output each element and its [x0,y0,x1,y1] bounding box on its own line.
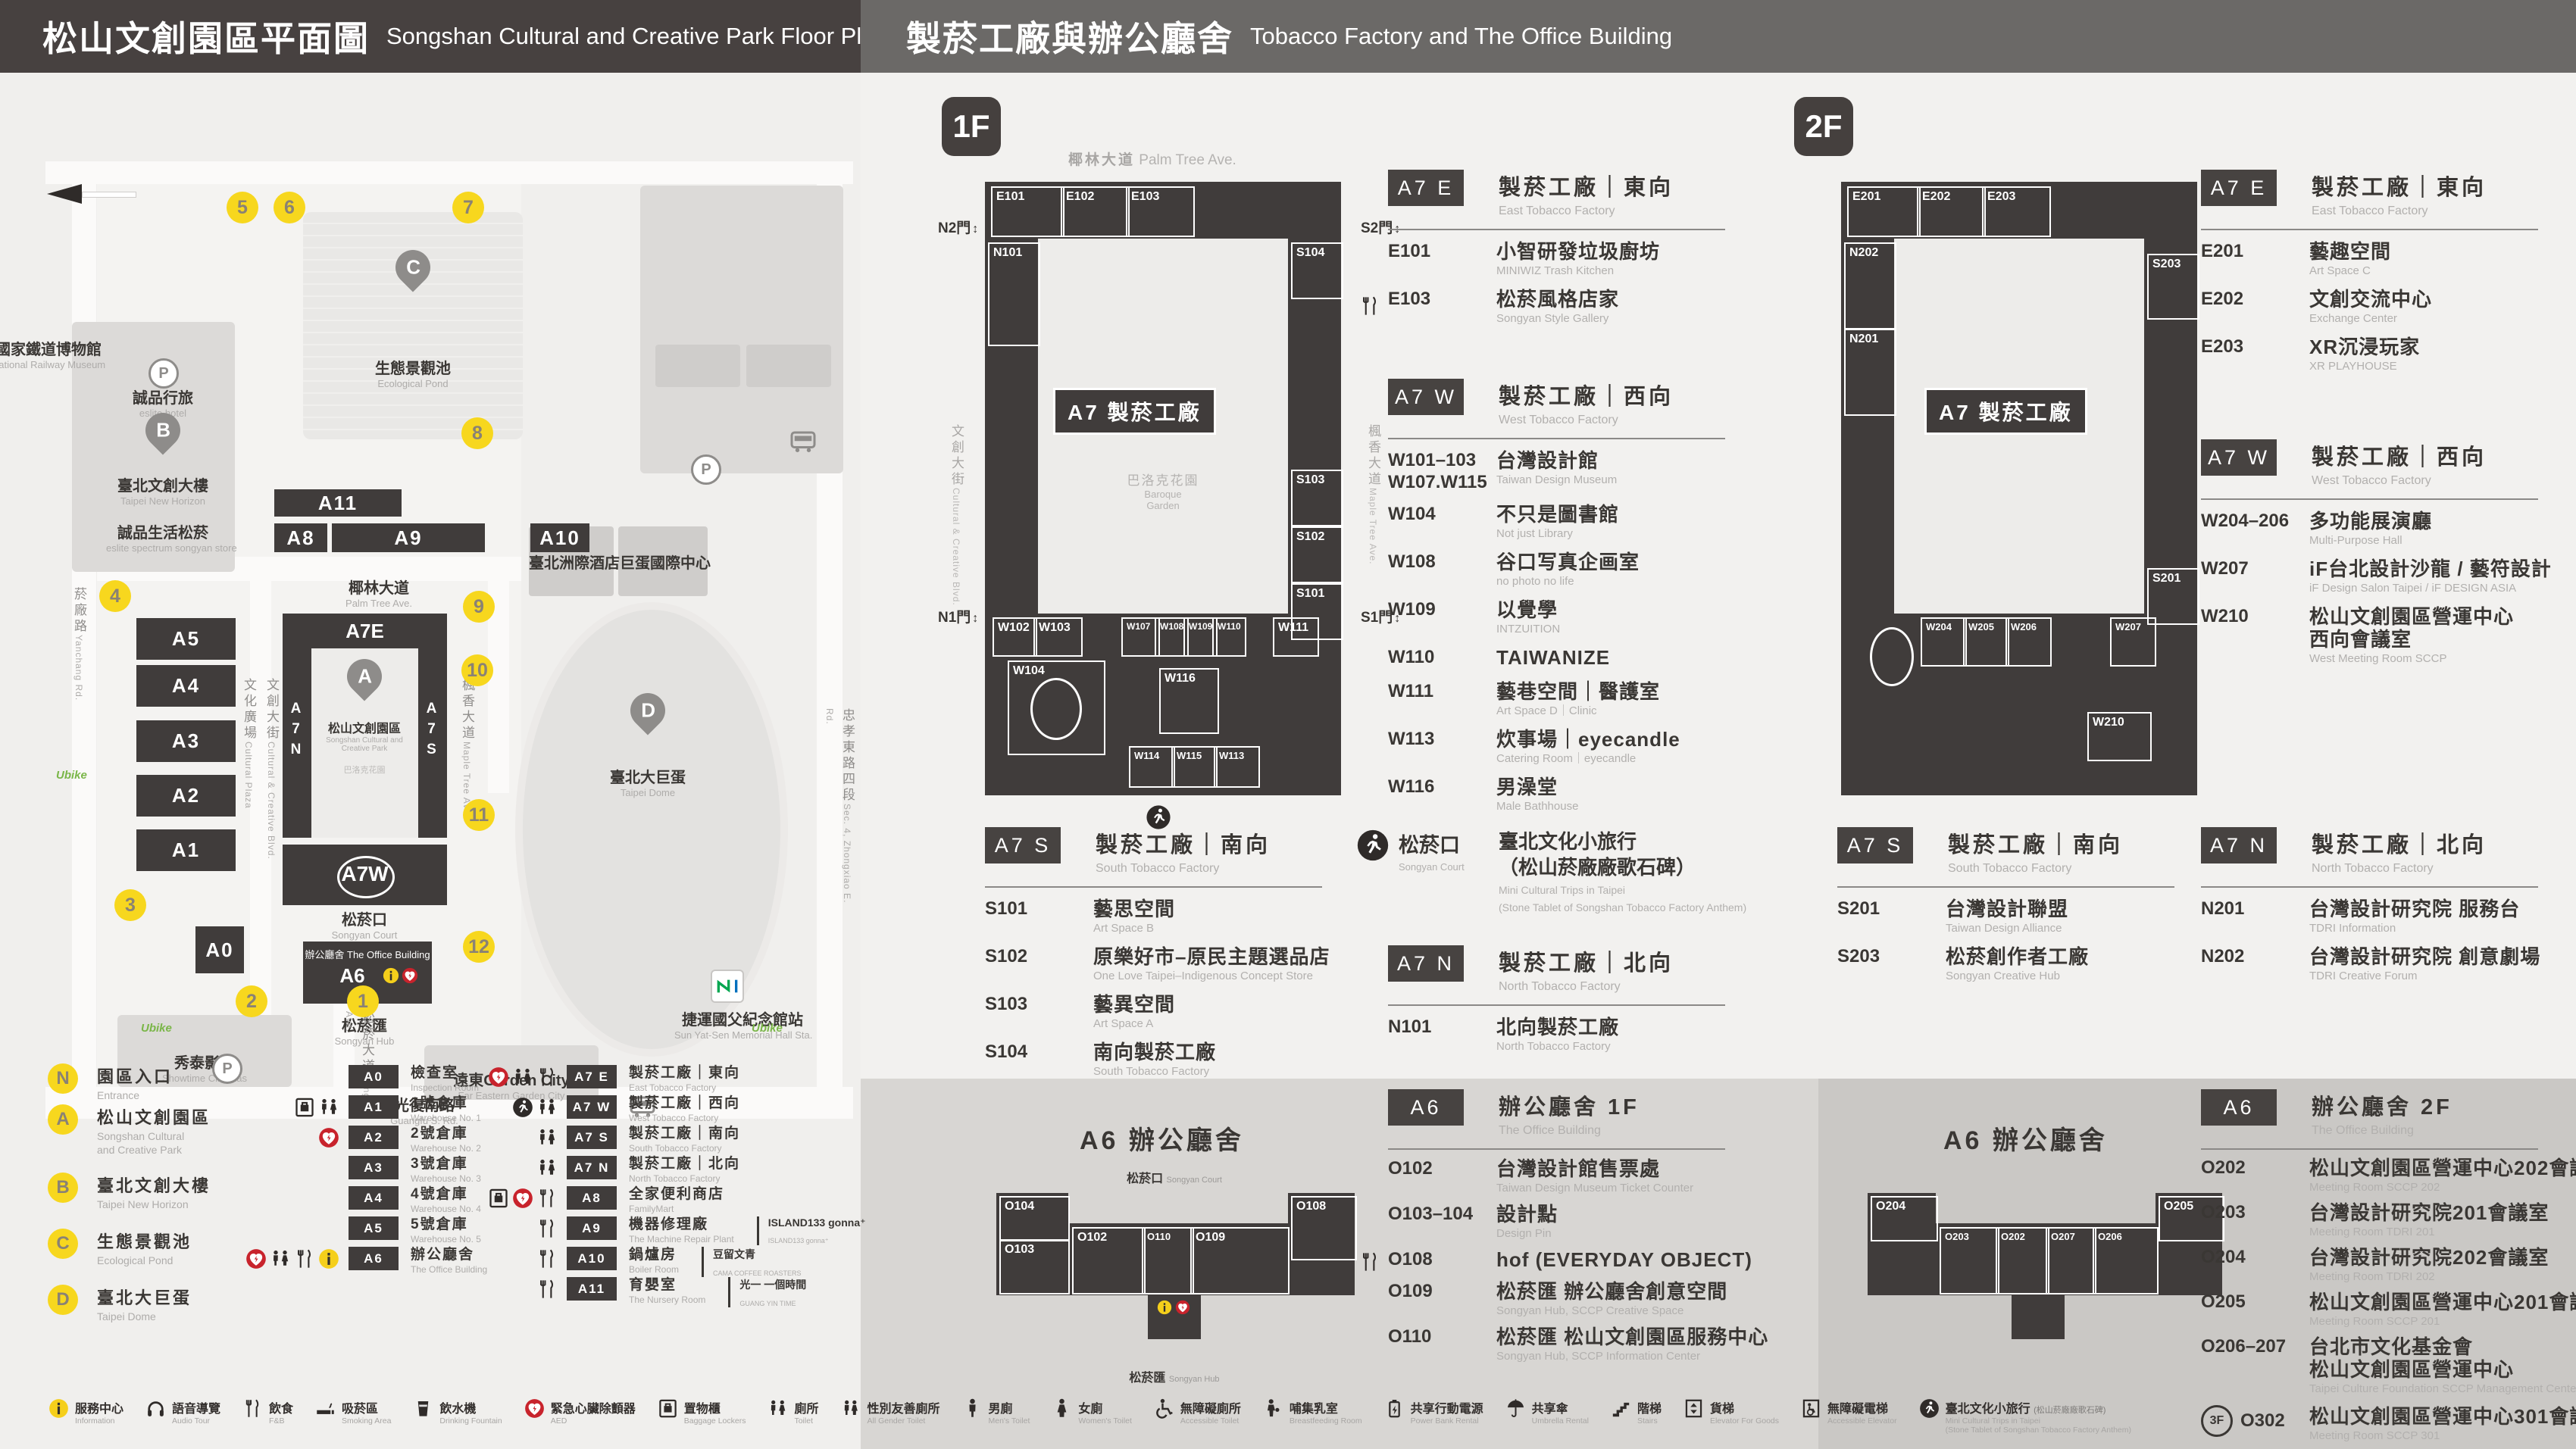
room[interactable]: E103 [1126,186,1195,237]
legend-building-badge: A7 W [567,1095,617,1119]
room[interactable]: W207 [2110,617,2156,667]
legend-brand: 光一 一個時間GUANG YIN TIME [728,1277,806,1307]
entrance-number[interactable]: 8 [461,417,493,449]
amenity-legend-item: 吸菸區 Smoking Area [315,1398,391,1426]
map-building[interactable]: A10 [530,523,589,552]
room-list-item[interactable]: S104 南向製菸工廠South Tobacco Factory [985,1041,1409,1079]
legend-point-row: D 臺北大巨蛋Taipei Dome [45,1285,333,1324]
amenity-icon [270,1248,291,1269]
room-list-item[interactable]: W116 男澡堂Male Bathhouse [1388,776,1812,814]
floor-2f-tag[interactable]: 2F [1794,97,1853,156]
room-list-item[interactable]: O103–104 設計點Design Pin [1388,1203,1812,1241]
legend-building-badge: A11 [567,1277,617,1301]
amenity-icon [767,1398,788,1419]
legend-point-row: A 松山文創園區Songshan Culturaland Creative Pa… [45,1104,333,1156]
plan-2f[interactable]: A7 製菸工廠 E201E202E203N202N201S203S201W204… [1841,182,2197,795]
room[interactable]: W114 [1129,746,1175,788]
section-a6-1f: A6 辦公廳舍 1FThe Office Building O102 台灣設計館… [1388,1089,1812,1363]
room-list-item[interactable]: O102 台灣設計館售票處Taiwan Design Museum Ticket… [1388,1157,1812,1195]
entrance-number[interactable]: 11 [463,799,495,831]
room[interactable]: N201 [1844,329,1896,416]
metro-logo [711,970,744,1003]
a6-2f-plan-title: A6 辦公廳舍 [1943,1120,2108,1157]
amenity-legend-item: 飲食 F&B [242,1398,293,1426]
legend-brand: 豆留文青CAMA COFFEE ROASTERS [702,1247,802,1277]
amenity-icon [318,1248,339,1269]
gate-label: N1門↕ [938,606,978,626]
legend-building-badge: A6 [349,1247,399,1270]
city-block-ne-a [655,345,740,387]
room[interactable]: O202 [1996,1227,2049,1294]
a6-plan-1f[interactable]: O104O103O102O110O109O108 [989,1166,1360,1363]
legend-building-badge: A4 [349,1186,399,1210]
room-list-item[interactable]: O203 台灣設計研究院201會議室Meeting Room TDRI 201 [2201,1201,2576,1239]
room-list-item[interactable]: W110 TAIWANIZE [1388,646,1812,670]
left-header-title-zh: 松山文創園區平面圖 [42,11,370,61]
room-list-item[interactable]: O205 松山文創園區營運中心201會議室Meeting Room SCCP 2… [2201,1291,2576,1329]
map-office-label: 辦公廳舍 The Office Building [303,947,432,961]
room[interactable]: W205 [1963,617,2009,667]
room-list-item[interactable]: W113 炊事場｜eyecandleCatering Room｜eyecandl… [1388,728,1812,766]
ubike-logo: Ubike [141,1022,172,1035]
right-header-title-zh: 製菸工廠與辦公廳舍 [906,11,1233,61]
map-a7e-label: A7E [283,620,447,643]
amenity-icon [1611,1398,1631,1419]
map-building[interactable]: A1 [136,829,236,871]
amenity-legend-item: 臺北文化小旅行 (松山菸廠廠歌石碑) Mini Cultural Trips i… [1919,1398,2131,1435]
city-block-ne-b [746,345,831,387]
amenity-icon [524,1398,545,1419]
room-list-item[interactable]: O204 台灣設計研究院202會議室Meeting Room TDRI 202 [2201,1246,2576,1284]
legend-point-row: N 園區入口Entrance [45,1063,333,1103]
ecological-pond [303,212,523,439]
room-list-item[interactable]: O108 hof (EVERYDAY OBJECT) [1388,1248,1812,1273]
legend-brand: ISLAND133 gonna⁺ISLAND133 gonna⁺ [757,1216,866,1245]
room[interactable]: O203 [1940,1227,1999,1294]
room[interactable]: O206 [2093,1227,2159,1294]
a6-1f-hub-label: 松菸匯 Songyan Hub [1114,1367,1235,1385]
amenity-icon [48,1398,69,1419]
map-building[interactable]: A0 [195,926,244,973]
amenity-icon [1263,1398,1283,1419]
amenity-legend-item: 哺集乳室 Breastfeeding Room [1263,1398,1362,1426]
legend-point-symbol: C [48,1229,78,1259]
legend-point-symbol: A [48,1104,78,1135]
section-a7s-1f: A7 S 製菸工廠｜南向South Tobacco Factory S101 藝… [985,827,1409,1079]
amenity-icon [294,1248,315,1269]
legend-building-badge: A3 [349,1156,399,1179]
map-label: 誠品生活松菸eslite spectrum songyan store [106,520,220,554]
entrance-number[interactable]: 2 [236,985,267,1017]
amenity-icon [658,1398,678,1419]
amenity-icon [536,1279,558,1300]
amenity-icon [1154,1398,1174,1419]
amenity-legend-item: 階梯 Stairs [1611,1398,1662,1426]
map-building[interactable]: A3 [136,720,236,762]
amenity-icon [512,1188,533,1209]
amenity-legend-strip: 服務中心 Information 語音導覽 Audio Tour 飲食 F&B [48,1398,2541,1435]
legend-building-row: A3 3號倉庫Warehouse No. 3 [349,1156,481,1184]
right-header-title-en: Tobacco Factory and The Office Building [1250,23,1672,50]
room-list-item[interactable]: S201 台灣設計聯盟Taiwan Design Alliance [1837,898,2262,935]
gate-arrow-icon: ↕ [972,223,978,236]
amenity-icon [1359,295,1380,317]
room[interactable]: W210 [2087,712,2152,761]
entrance-number[interactable]: 6 [274,192,305,223]
room[interactable]: O109 [1190,1227,1290,1294]
amenity-legend-item: 貨梯 Elevator For Goods [1683,1398,1779,1426]
room-list-item[interactable]: W104 不只是圖書館Not just Library [1388,503,1812,541]
amenity-icon [536,1066,558,1088]
room-list-item[interactable]: O110 松菸匯 松山文創園區服務中心Songyan Hub, SCCP Inf… [1388,1326,1812,1363]
amenity-icon [318,1097,339,1118]
section-a7n-1f: A7 N 製菸工廠｜北向North Tobacco Factory N101 北… [1388,945,1812,1054]
map-building[interactable]: A5 [136,618,236,660]
map-label: 椰林大道Palm Tree Ave. [303,576,455,609]
room-list-item[interactable]: E203 XR沉浸玩家XR PLAYHOUSE [2201,336,2576,373]
section-a7n-2f: A7 N 製菸工廠｜北向North Tobacco Factory N201 台… [2201,827,2576,983]
plan-2f-title: A7 製菸工廠 [1924,388,2087,435]
room-list-item[interactable]: S102 原樂好市–原民主題選品店One Love Taipei–Indigen… [985,945,1409,983]
room-list-item[interactable]: E201 藝趣空間Art Space C [2201,240,2576,278]
plan-1f-title: A7 製菸工廠 [1053,388,1216,435]
room[interactable]: E101 [991,186,1064,237]
room[interactable]: W110 [1212,617,1246,657]
civic-blvd-road [45,161,853,184]
street-label: 菸廠路Yanchang Rd. [70,587,89,716]
section-a7e-2f: A7 E 製菸工廠｜東向East Tobacco Factory E201 藝趣… [2201,170,2576,373]
left-header-title-en: Songshan Cultural and Creative Park Floo… [386,23,888,50]
room[interactable]: O103 [999,1239,1070,1294]
entrance-number[interactable]: 1 [347,985,379,1017]
amenity-icon [1683,1398,1704,1419]
park-map[interactable]: A7E A7N A7S 松山文創園區 Songshan Cultural and… [0,72,861,1057]
amenity-icon [536,1097,558,1118]
amenity-icon [1801,1398,1821,1419]
amenity-legend-item: 性別友善廁所 All Gender Toilet [840,1398,939,1426]
legend-building-badge: A2 [349,1126,399,1149]
songyan-court-block: 松菸口Songyan Court 臺北文化小旅行 （松山菸廠廠歌石碑） Mini… [1356,829,1811,915]
map-building[interactable]: A4 [136,665,236,707]
amenity-legend-item: 無障礙電梯 Accessible Elevator [1801,1398,1897,1426]
room[interactable]: W204 [1921,617,1967,667]
map-building[interactable]: A11 [274,489,402,517]
amenity-icon [145,1398,166,1419]
legend-building-row: A6 辦公廳舍The Office Building [349,1247,487,1275]
amenity-icon [962,1398,983,1419]
amenity-icon [1359,1251,1380,1273]
room-list-item[interactable]: W109 以覺學INTZUITION [1388,598,1812,636]
room-list-item[interactable]: E101 小智研發垃圾廚坊MINIWIZ Trash Kitchen [1388,240,1812,278]
room[interactable]: W111 [1273,617,1319,657]
map-a6-aed-icon [402,967,418,984]
entrance-number[interactable]: 4 [99,580,131,612]
room[interactable]: O104 [999,1196,1070,1241]
legend-building-row: A7 E 製菸工廠｜東向East Tobacco Factory [567,1065,740,1093]
amenity-icon [536,1127,558,1148]
legend-building-badge: A1 [349,1095,399,1119]
maple-ave-label-1f: 楓香大道Maple Tree Ave. [1364,424,1383,565]
room[interactable]: O110 [1142,1227,1194,1294]
amenity-icon [315,1398,336,1419]
map-label: 臺北文創大樓Taipei New Horizon [98,473,227,507]
baroque-garden-label: 巴洛克花園 Baroque Garden [1099,470,1227,511]
legend-building-badge: A9 [567,1216,617,1240]
entrance-number[interactable]: 9 [463,591,495,623]
room-list-item[interactable]: O109 松菸匯 辦公廳舍創意空間Songyan Hub, SCCP Creat… [1388,1280,1812,1318]
amenity-icon [536,1157,558,1179]
amenity-icon [840,1398,861,1419]
map-label: 松菸口Songyan Court [311,907,417,941]
legend-building-row: A5 5號倉庫Warehouse No. 5 [349,1216,481,1244]
amenity-icon [318,1127,339,1148]
amenity-icon [536,1248,558,1269]
legend-building-badge: A10 [567,1247,617,1270]
left-header: 松山文創園區平面圖 Songshan Cultural and Creative… [0,0,903,73]
room[interactable]: W116 [1159,668,1219,734]
amenity-icon [294,1097,315,1118]
room-list-item[interactable]: N202 台灣設計研究院 創意劇場TDRI Creative Forum [2201,945,2576,983]
legend-point-symbol: N [48,1063,78,1094]
amenity-legend-item: 置物櫃 Baggage Lockers [658,1398,746,1426]
section-a7w-2f: A7 W 製菸工廠｜西向West Tobacco Factory W204–20… [2201,439,2576,666]
gate-arrow-icon: ↕ [972,612,978,625]
room-list-item[interactable]: W108 谷口写真企画室no photo no life [1388,551,1812,589]
legend-point-symbol: B [48,1173,78,1203]
legend-building-badge: A5 [349,1216,399,1240]
legend-building-badge: A7 S [567,1126,617,1149]
a6-1f-plan-title: A6 辦公廳舍 [1080,1120,1244,1157]
map-label: 國家鐵道博物館National Railway Museum [0,337,117,370]
amenity-legend-item: 女廁 Women's Toilet [1052,1398,1131,1426]
floor-1f-tag[interactable]: 1F [942,97,1001,156]
room[interactable]: S102 [1291,526,1343,583]
amenity-icon [413,1398,433,1419]
amenity-icon [512,1097,533,1118]
entrance-number[interactable]: 7 [452,192,484,223]
street-label: 忠孝東路四段Sec. 4, Zhongxiao E. Rd. [823,708,857,905]
room-list-item[interactable]: E103 松菸風格店家Songyan Style Gallery [1388,288,1812,326]
amenity-legend-item: 語音導覽 Audio Tour [145,1398,220,1426]
street-label: 文創大街Cultural & Creative Blvd. [262,678,281,890]
amenity-legend-item: 男廁 Men's Toilet [962,1398,1030,1426]
right-header: 製菸工廠與辦公廳舍 Tobacco Factory and The Office… [861,0,2576,73]
legend-building-row: A7 N 製菸工廠｜北向North Tobacco Factory [567,1156,740,1184]
bus-stop-icon [789,428,817,455]
amenity-legend-item: 服務中心 Information [48,1398,123,1426]
section-a7e-1f: A7 E 製菸工廠｜東向East Tobacco Factory E101 小智… [1388,170,1812,326]
north-arrow-icon [47,184,138,204]
legend-building-row: A8 全家便利商店FamilyMart [567,1186,724,1214]
amenity-icon [1384,1398,1405,1419]
amenity-legend-item: 緊急心臟除顫器 AED [524,1398,636,1426]
court-walker-icon-1f [1146,804,1171,830]
legend-point-row: B 臺北文創大樓Taipei New Horizon [45,1173,333,1212]
amenity-icon [1052,1398,1072,1419]
legend-building-row: A2 2號倉庫Warehouse No. 2 [349,1126,481,1154]
room-list-item[interactable]: O206–207 台北市文化基金會松山文創園區營運中心Taipei Cultur… [2201,1335,2576,1396]
room-list-item[interactable]: S203 松菸創作者工廠Songyan Creative Hub [1837,945,2262,983]
room-list-item[interactable]: E202 文創交流中心Exchange Center [2201,288,2576,326]
parking-icon: P [691,454,721,485]
map-label: 臺北大巨蛋Taipei Dome [583,765,712,798]
amenity-icon [1919,1398,1940,1419]
room-list-item[interactable]: S101 藝思空間Art Space B [985,898,1409,935]
room-list-item[interactable]: N201 台灣設計研究院 服務台TDRI Information [2201,898,2576,935]
room[interactable]: W103 [1033,617,1083,657]
room-list-item[interactable]: W101–103W107.W115 台灣設計館Taiwan Design Mus… [1388,449,1812,493]
map-a7w-label: A7W [283,862,447,886]
room[interactable]: W102 [993,617,1037,657]
legend-point-symbol: D [48,1285,78,1315]
a6-plan-2f[interactable]: O204O203O202O207O206O205 [1860,1166,2231,1363]
legend-building-row: A1 1號倉庫Warehouse No. 1 [349,1095,481,1123]
entrance-number[interactable]: 5 [227,192,258,223]
room[interactable]: N101 [988,242,1040,346]
room-list-item[interactable]: W210 松山文創園區營運中心西向會議室West Meeting Room SC… [2201,605,2576,666]
taipei-dome-shape [515,602,788,1057]
amenity-icon [488,1188,509,1209]
map-building[interactable]: A2 [136,775,236,817]
entrance-number[interactable]: 12 [463,931,495,963]
amenity-legend-item: 共享行動電源 Power Bank Rental [1384,1398,1483,1426]
room[interactable]: O108 [1291,1196,1357,1260]
room[interactable]: O204 [1871,1196,1938,1241]
plan-1f[interactable]: A7 製菸工廠 巴洛克花園 Baroque Garden E101E102E10… [985,182,1341,795]
map-label: 巨蛋國際中心 [620,551,708,573]
legend-building-badge: A7 N [567,1156,617,1179]
map-a6-info-icon [383,967,399,984]
room-list-item[interactable]: N101 北向製菸工廠North Tobacco Factory [1388,1016,1812,1054]
room[interactable]: S203 [2147,254,2199,320]
palm-ave-label-1f: 椰林大道 Palm Tree Ave. [1068,148,1236,169]
room[interactable]: W113 [1214,746,1260,788]
map-sccp-label: 松山文創園區 Songshan Cultural and Creative Pa… [300,718,429,776]
amenity-icon [242,1398,263,1419]
legend-building-row: A10 鍋爐房Boiler Room 豆留文青CAMA COFFEE ROAST… [567,1247,802,1277]
legend-building-row: A7 W 製菸工廠｜西向West Tobacco Factory [567,1095,740,1123]
map-building[interactable]: A9 [332,523,485,552]
section-a7w-1f: A7 W 製菸工廠｜西向West Tobacco Factory W101–10… [1388,379,1812,814]
section-a7s-2f: A7 S 製菸工廠｜南向South Tobacco Factory S201 台… [1837,827,2262,983]
map-label: 生態景觀池Ecological Pond [349,356,477,389]
map-label: 捷運國父紀念館站Sun Yat-Sen Memorial Hall Sta. [674,1007,811,1041]
walker-badge-icon [1356,829,1390,862]
parking-icon: P [148,358,179,389]
room[interactable]: O207 [2046,1227,2096,1294]
amenity-legend-item: 無障礙廁所 Accessible Toilet [1154,1398,1241,1426]
room[interactable]: E203 [1982,186,2051,237]
map-building[interactable]: A8 [274,523,327,552]
room[interactable]: S201 [2147,568,2199,625]
room-list-item[interactable]: O202 松山文創園區營運中心202會議室Meeting Room SCCP 2… [2201,1157,2576,1194]
amenity-icon [512,1066,533,1088]
amenity-legend-item: 廁所 Toilet [767,1398,818,1426]
room-list-item[interactable]: W111 藝巷空間｜醫護室Art Space D｜Clinic [1388,680,1812,718]
gate-label: N2門↕ [938,217,978,237]
amenity-icon [488,1066,509,1088]
legend-building-row: A0 檢查室Inspection Room [349,1065,479,1093]
amenity-icon [536,1188,558,1209]
amenity-legend-item: 共享傘 Umbrella Rental [1505,1398,1589,1426]
room-list-item[interactable]: W204–206 多功能展演廳Multi-Purpose Hall [2201,510,2576,548]
room[interactable]: N202 [1844,242,1896,329]
entrance-number[interactable]: 10 [461,654,493,686]
legend-building-row: A9 機器修理廠The Machine Repair Plant ISLAND1… [567,1216,866,1245]
room[interactable]: E202 [1917,186,1986,237]
section-a6-2f: A6 辦公廳舍 2FThe Office Building O202 松山文創園… [2201,1089,2576,1443]
ubike-logo: Ubike [752,1022,783,1035]
legend-building-badge: A8 [567,1186,617,1210]
room[interactable]: E102 [1061,186,1130,237]
amenity-legend-item: 飲水機 Drinking Fountain [413,1398,502,1426]
legend-building-badge: A7 E [567,1065,617,1088]
amenity-icon [245,1248,267,1269]
room-list-item[interactable]: W207 iF台北設計沙龍 / 藝符設計iF Design Salon Taip… [2201,557,2576,595]
legend-building-row: A7 S 製菸工廠｜南向South Tobacco Factory [567,1126,740,1154]
room[interactable]: O102 [1072,1227,1146,1294]
entrance-number[interactable]: 3 [114,889,146,921]
room[interactable]: S103 [1291,470,1343,526]
ubike-logo: Ubike [56,769,87,782]
cc-blvd-label-1f: 文創大街Cultural & Creative Blvd. [947,424,966,606]
map-label: 臺北洲際酒店 [529,551,614,573]
room[interactable]: W115 [1171,746,1218,788]
room[interactable]: E201 [1847,186,1921,237]
room[interactable]: W104 [1008,660,1105,755]
room[interactable]: S104 [1291,242,1343,299]
room-list-item[interactable]: S103 藝異空間Art Space A [985,993,1409,1031]
legend-building-row: A4 4號倉庫Warehouse No. 4 [349,1186,481,1214]
legend-building-badge: A0 [349,1065,399,1088]
amenity-icon [1505,1398,1526,1419]
room[interactable]: W206 [2005,617,2052,667]
legend-building-row: A11 育嬰室The Nursery Room 光一 一個時間GUANG YIN… [567,1277,806,1307]
street-label: 文化廣場Cultural Plaza [239,678,258,852]
amenity-icon [536,1218,558,1239]
